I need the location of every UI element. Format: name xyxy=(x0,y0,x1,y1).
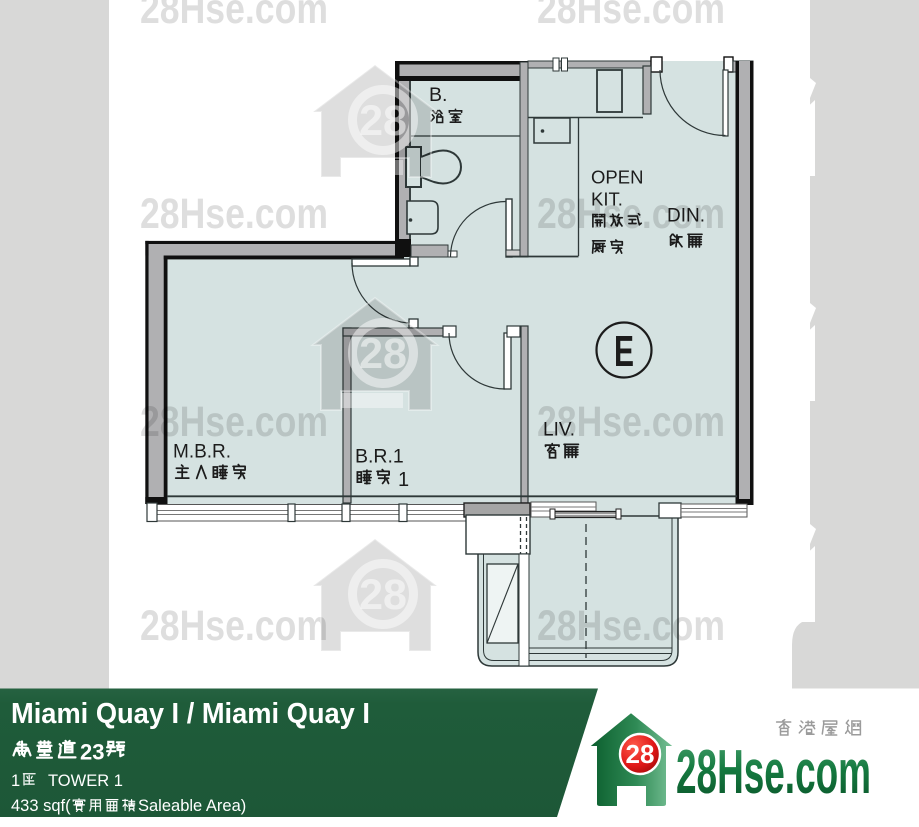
svg-text:28: 28 xyxy=(359,330,407,378)
svg-text:28Hse.com: 28Hse.com xyxy=(140,398,328,446)
svg-text:B.R.1: B.R.1 xyxy=(355,446,404,468)
svg-text:28: 28 xyxy=(359,97,407,145)
svg-text:TOWER 1: TOWER 1 xyxy=(48,772,123,790)
svg-text:28Hse.com: 28Hse.com xyxy=(537,602,725,650)
svg-text:OPEN: OPEN xyxy=(591,167,643,188)
svg-text:B.: B. xyxy=(429,84,447,106)
svg-text:28Hse.com: 28Hse.com xyxy=(140,602,328,650)
svg-text:28Hse.com: 28Hse.com xyxy=(676,738,871,807)
svg-text:28Hse.com: 28Hse.com xyxy=(140,190,328,238)
svg-text:28Hse.com: 28Hse.com xyxy=(140,0,328,33)
svg-text:23: 23 xyxy=(80,740,104,765)
svg-text:433 sqf(: 433 sqf( xyxy=(11,797,71,815)
svg-text:28: 28 xyxy=(626,739,655,769)
svg-text:E: E xyxy=(614,327,634,376)
svg-text:Saleable Area): Saleable Area) xyxy=(138,797,246,815)
svg-text:28Hse.com: 28Hse.com xyxy=(537,0,725,33)
svg-text:28Hse.com: 28Hse.com xyxy=(537,190,725,238)
svg-text:1: 1 xyxy=(11,772,20,790)
svg-text:1: 1 xyxy=(398,469,409,491)
svg-text:28Hse.com: 28Hse.com xyxy=(537,398,725,446)
svg-text:Miami Quay I / Miami Quay I: Miami Quay I / Miami Quay I xyxy=(11,698,370,730)
svg-text:28: 28 xyxy=(359,571,407,619)
